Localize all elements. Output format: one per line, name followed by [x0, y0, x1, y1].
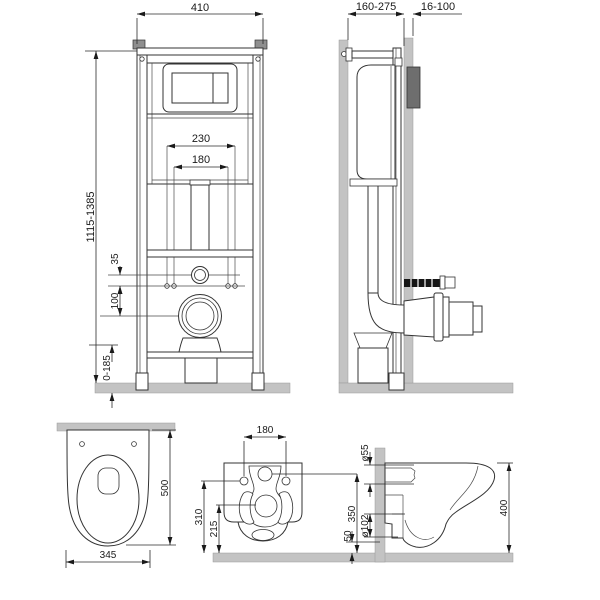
- dim-rod-spacing-outer-label: 230: [192, 133, 210, 145]
- flush-pipe-front: [147, 180, 253, 257]
- foot-side: [389, 373, 404, 390]
- mount-hole-left: [240, 477, 248, 485]
- dim-panel-thickness-label: 16-100: [421, 1, 455, 13]
- floor-bottom: [213, 553, 513, 562]
- rear-wall: [339, 40, 348, 383]
- inlet-hole-rear: [258, 467, 272, 481]
- dim-rod-spacing-inner-label: 180: [192, 154, 210, 166]
- dim-leg-adjust: 0-185: [89, 345, 118, 408]
- installation-drawing: 410 1115-1385 230 180 35 100: [0, 0, 600, 600]
- trap-bottom: [252, 530, 274, 541]
- dim-frame-height-label: 1115-1385: [85, 192, 97, 243]
- dim-inlet-diameter-label: ø55: [360, 444, 371, 462]
- centerlines: [100, 266, 245, 326]
- outlet-hole-rear: [255, 495, 277, 517]
- dim-frame-depth: 160-275: [348, 1, 404, 46]
- adjustable-foot-left: [136, 373, 148, 390]
- adjustable-foot-right: [252, 373, 264, 390]
- dim-bowl-width-label: 345: [100, 550, 117, 561]
- dim-hole-height-label: 310: [194, 508, 205, 525]
- cistern-side: [350, 65, 397, 186]
- dim-bowl-width: 345: [66, 550, 150, 568]
- water-inlet-front: [192, 267, 209, 284]
- dim-inlet-offset: 35: [110, 253, 121, 295]
- dim-frame-height: 1115-1385: [85, 51, 137, 383]
- dim-panel-thickness: 16-100: [413, 1, 462, 36]
- dim-bowl-height: 400: [497, 463, 513, 553]
- dim-outlet-offset-label: 100: [110, 292, 121, 309]
- frame-front-view: 410 1115-1385 230 180 35 100: [85, 2, 290, 408]
- washer: [440, 276, 445, 289]
- dim-leg-adjust-label: 0-185: [102, 355, 113, 381]
- mount-hole-right: [282, 477, 290, 485]
- nut: [445, 277, 455, 288]
- frame-side-view: 160-275 16-100: [339, 1, 513, 393]
- dim-outlet-diameter-label: ø102: [360, 514, 371, 537]
- dim-frame-depth-label: 160-275: [356, 1, 396, 13]
- dim-bowl-height-label: 400: [499, 499, 510, 516]
- outlet-pipe-side: [404, 293, 482, 341]
- hinge-hole-left: [80, 442, 85, 447]
- dim-inlet-offset-label: 35: [110, 253, 121, 265]
- dim-outlet-height-label: 215: [209, 520, 220, 537]
- hinge-hole-right: [132, 442, 137, 447]
- flush-opening: [98, 468, 119, 494]
- dim-hole-spacing-label: 180: [257, 425, 274, 436]
- dim-frame-width-label: 410: [191, 2, 209, 14]
- dim-outlet-floor-gap-label: 50: [343, 530, 354, 542]
- wall-bracket-side: [342, 48, 394, 61]
- floor-side: [339, 383, 513, 393]
- outlet-front: [147, 295, 253, 384]
- dim-inlet-height-label: 350: [347, 505, 358, 522]
- toilet-top-view: 500 345: [57, 423, 176, 568]
- flush-plate-side: [407, 67, 420, 108]
- support-box: [354, 333, 392, 383]
- dim-outlet-offset: 100: [110, 286, 121, 316]
- bowl-profile: [385, 463, 495, 547]
- dim-bowl-depth-label: 500: [160, 479, 171, 496]
- flush-plate: [163, 64, 237, 112]
- toilet-rear-view: 180 310 215 350: [194, 425, 358, 553]
- toilet-side-view: ø55 ø102 50 400: [343, 444, 513, 564]
- dim-frame-width: 410: [137, 2, 263, 44]
